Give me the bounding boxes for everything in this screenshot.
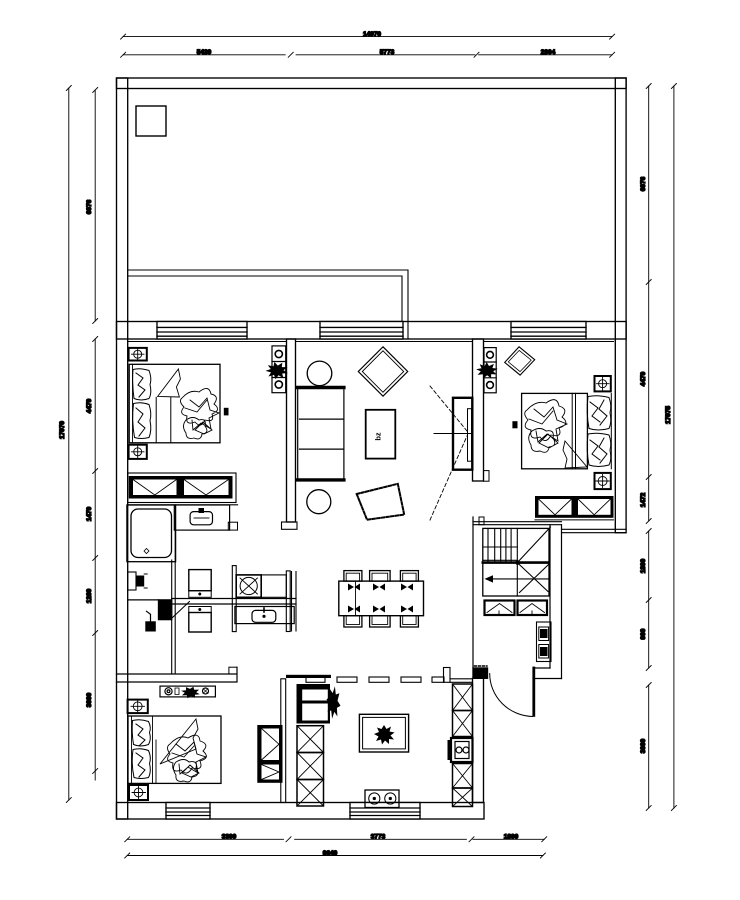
svg-text:6076: 6076 [86,199,93,214]
svg-text:17075: 17075 [665,406,672,424]
svg-text:3000: 3000 [86,692,93,707]
svg-text:3300: 3300 [222,834,237,841]
svg-text:bz: bz [374,432,383,441]
svg-text:14070: 14070 [363,31,381,38]
svg-text:6076: 6076 [640,176,647,191]
svg-text:1800: 1800 [640,558,647,573]
svg-text:1260: 1260 [86,588,93,603]
svg-text:5773: 5773 [380,49,395,56]
svg-text:1472: 1472 [640,492,647,507]
svg-text:17070: 17070 [59,421,66,439]
svg-text:1470: 1470 [86,506,93,521]
svg-text:2904: 2904 [541,49,556,56]
svg-text:4470: 4470 [86,398,93,413]
svg-text:9640: 9640 [323,850,338,857]
svg-text:4470: 4470 [640,371,647,386]
svg-text:900: 900 [640,628,647,639]
svg-text:3773: 3773 [371,834,386,841]
svg-text:5430: 5430 [197,49,212,56]
svg-text:1800: 1800 [504,834,519,841]
svg-text:3000: 3000 [640,738,647,753]
